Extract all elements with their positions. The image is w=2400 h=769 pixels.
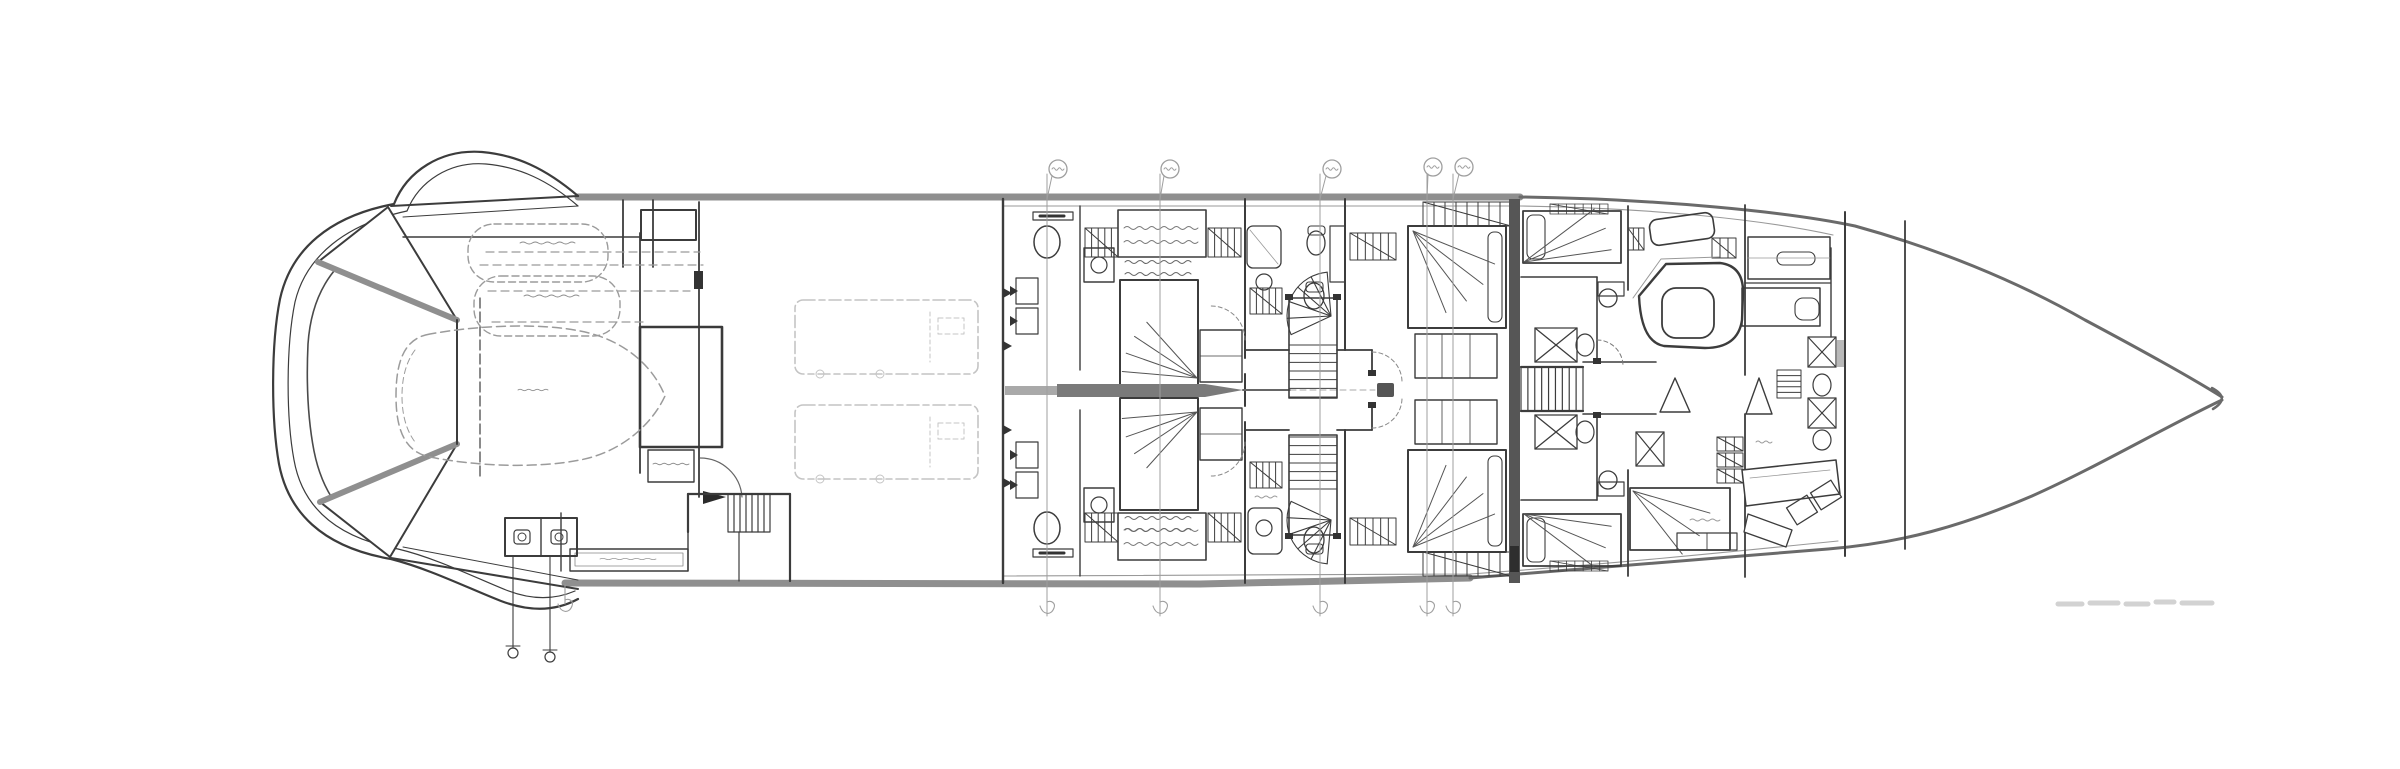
floor-plan-svg bbox=[0, 0, 2400, 769]
watermark-text bbox=[2058, 602, 2212, 604]
shore-power-outlets bbox=[505, 518, 577, 662]
engines-below bbox=[795, 300, 978, 483]
guest-cabins bbox=[1345, 199, 1511, 583]
tender-garage bbox=[403, 200, 790, 581]
centerline-shaft bbox=[1005, 383, 1394, 397]
stair-lobby bbox=[1245, 226, 1372, 564]
tender-outline bbox=[396, 326, 665, 465]
midship-cabins bbox=[1521, 204, 1656, 571]
watertight-bulkhead bbox=[1509, 199, 1520, 583]
stern-transom bbox=[273, 152, 578, 609]
yacht-lower-deck-plan bbox=[0, 0, 2400, 769]
forepeak-bulkheads bbox=[1845, 212, 1905, 556]
